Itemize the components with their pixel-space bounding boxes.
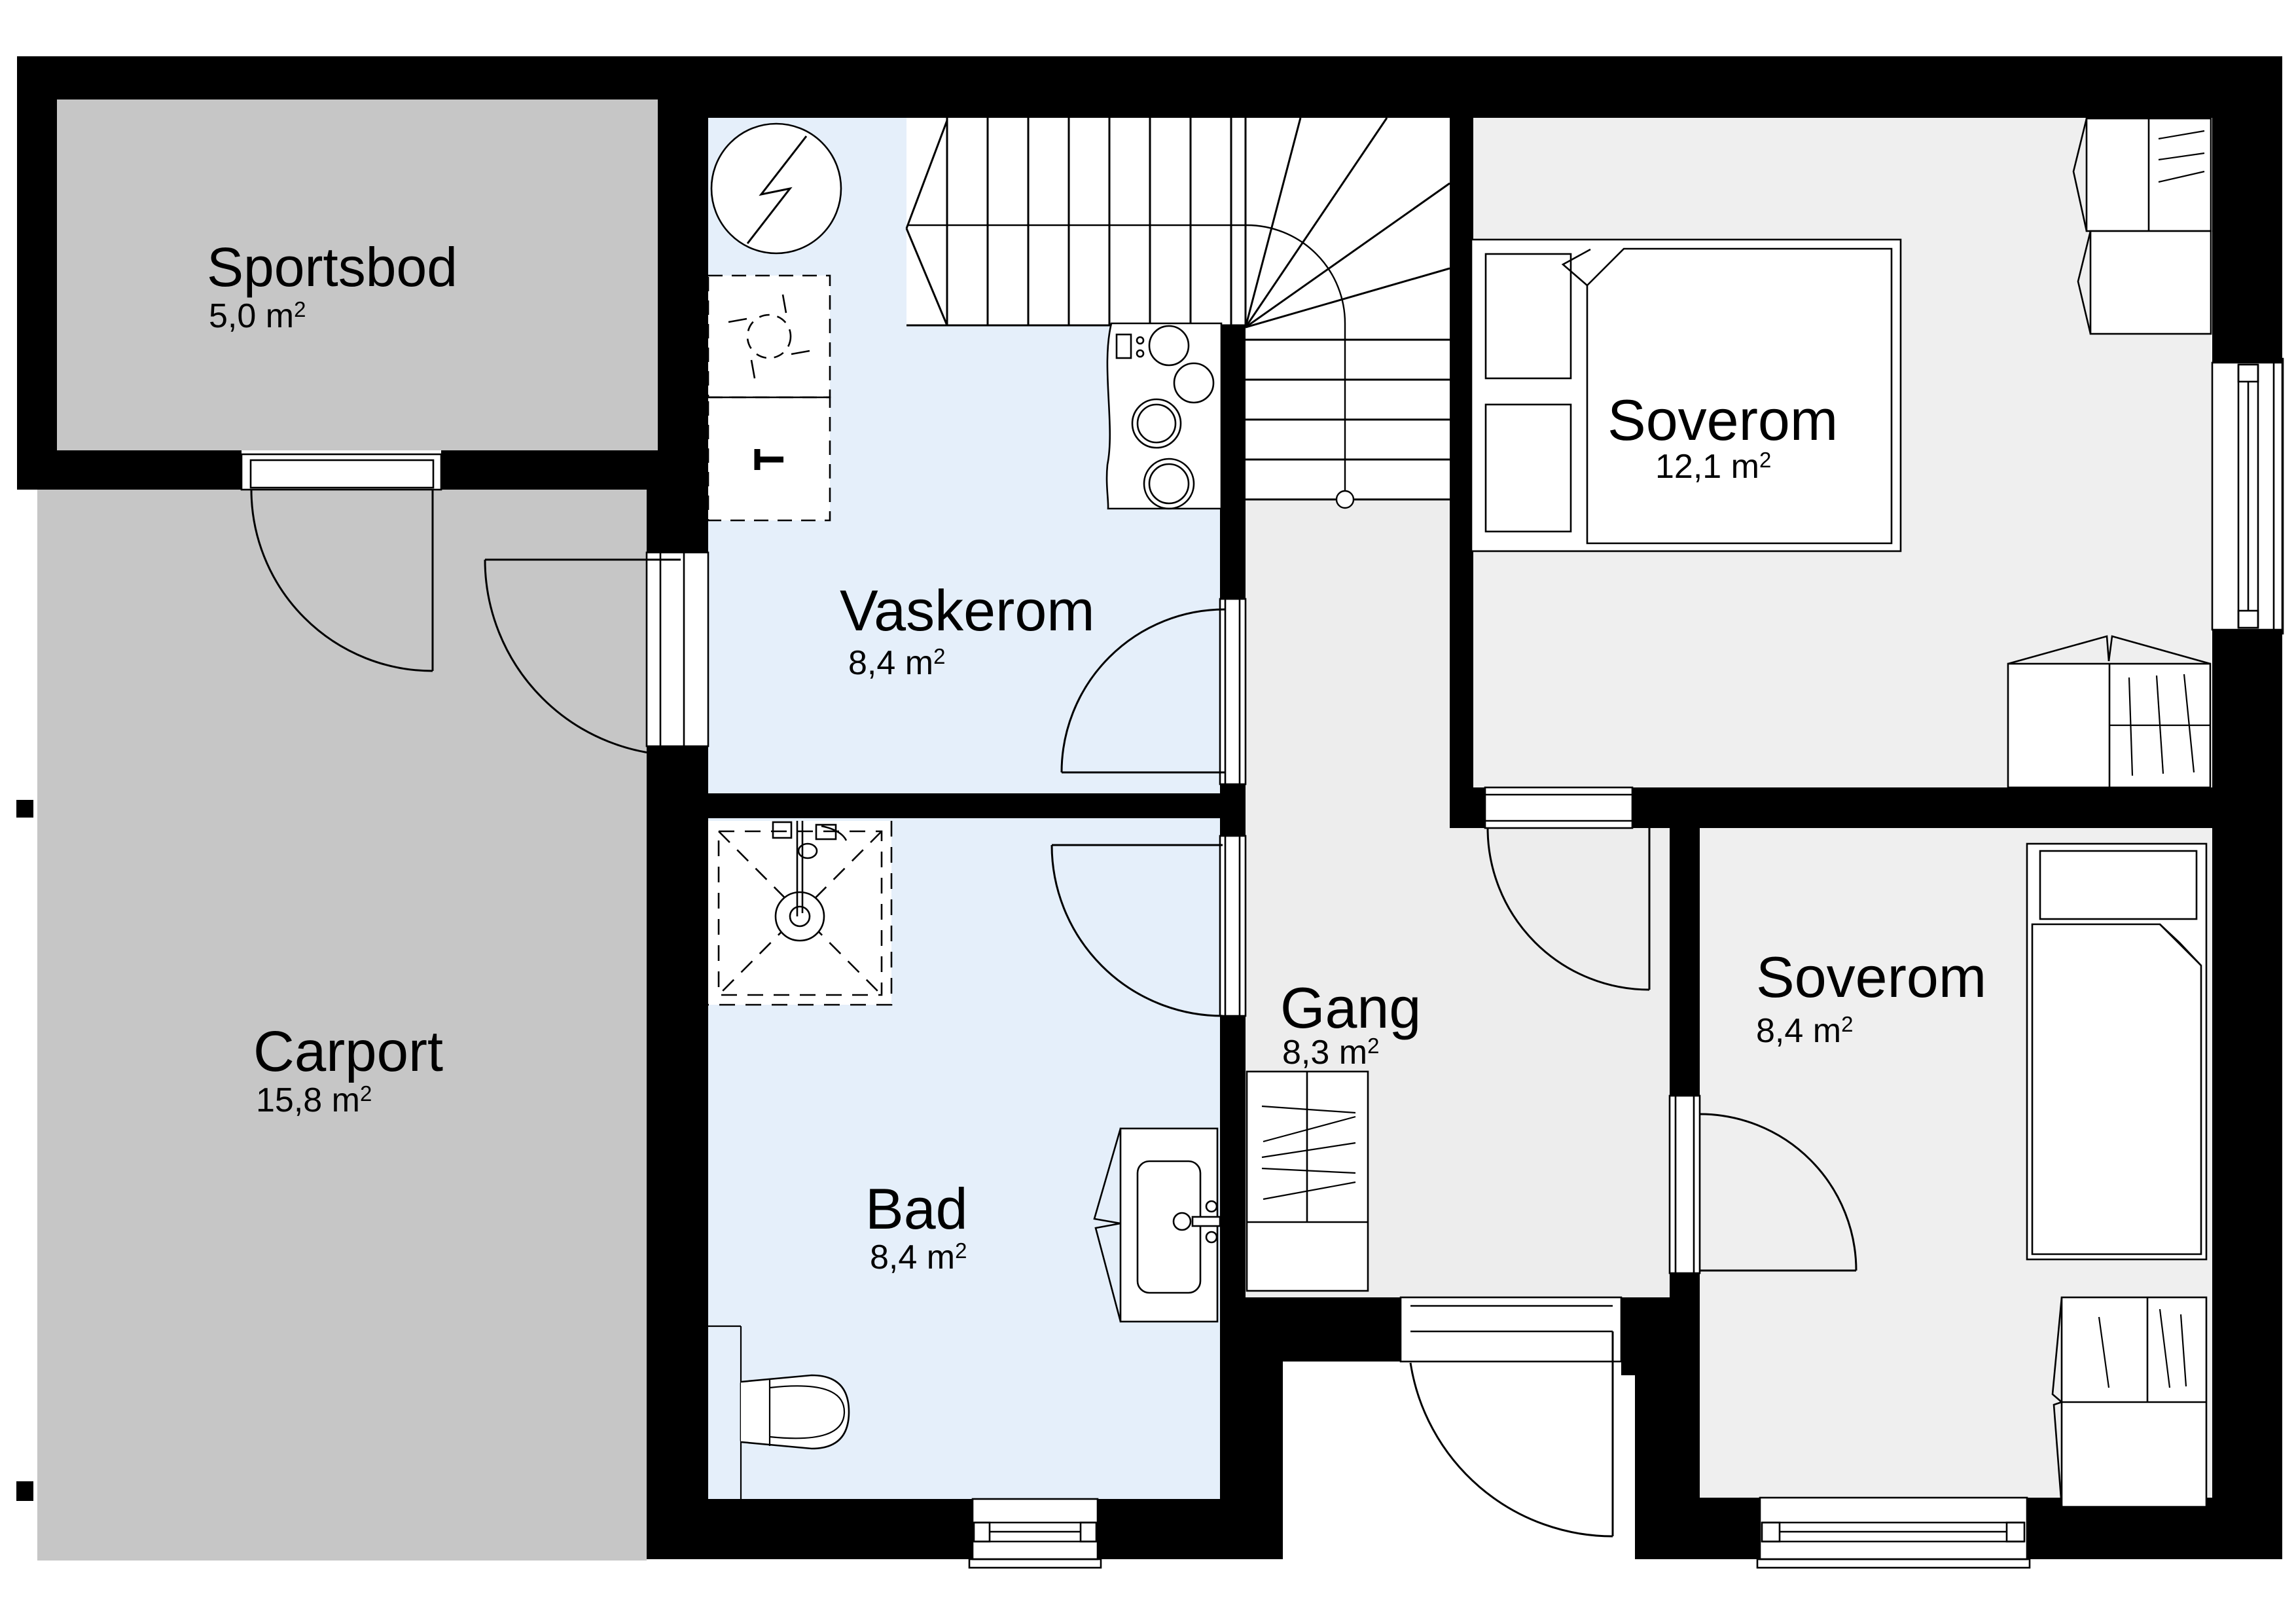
svg-text:Soverom: Soverom bbox=[1607, 388, 1838, 452]
svg-text:12,1 m2: 12,1 m2 bbox=[1655, 448, 1771, 486]
svg-text:Soverom: Soverom bbox=[1756, 945, 1986, 1009]
svg-text:8,4 m2: 8,4 m2 bbox=[1756, 1012, 1853, 1050]
svg-text:15,8 m2: 15,8 m2 bbox=[256, 1081, 372, 1119]
svg-text:Bad: Bad bbox=[865, 1176, 968, 1241]
svg-text:8,3 m2: 8,3 m2 bbox=[1282, 1034, 1379, 1072]
svg-text:Gang: Gang bbox=[1280, 975, 1421, 1040]
svg-text:Vaskerom: Vaskerom bbox=[840, 578, 1095, 643]
svg-text:Sportsbod: Sportsbod bbox=[207, 236, 457, 298]
svg-text:8,4 m2: 8,4 m2 bbox=[870, 1238, 967, 1276]
svg-text:Carport: Carport bbox=[253, 1020, 443, 1083]
svg-text:5,0 m2: 5,0 m2 bbox=[209, 297, 306, 335]
svg-text:8,4 m2: 8,4 m2 bbox=[848, 644, 945, 682]
